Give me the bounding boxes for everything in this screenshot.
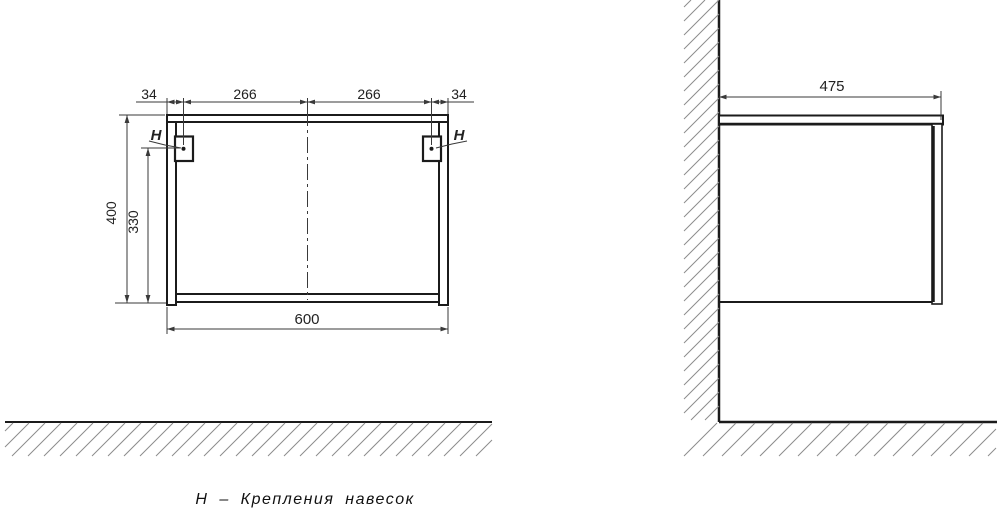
hatch-line xyxy=(684,42,719,77)
hatch-line xyxy=(684,210,719,245)
hatch-line xyxy=(988,448,996,456)
hatch-line xyxy=(428,423,461,456)
hatch-line xyxy=(396,423,429,456)
hatch-line xyxy=(284,423,317,456)
hatch-line xyxy=(28,423,61,456)
hatch-line xyxy=(684,350,719,385)
hatch-line xyxy=(684,308,719,343)
technical-drawing-page: Н Н 34 266 266 34 400 xyxy=(0,0,1000,509)
dim-600: 600 xyxy=(294,311,319,328)
hatch-line xyxy=(874,423,907,456)
hatch-line xyxy=(124,423,157,456)
hatch-line xyxy=(684,70,719,105)
hatch-line xyxy=(684,168,719,203)
hatch-line xyxy=(44,423,77,456)
hatch-line xyxy=(684,182,719,217)
hatch-line xyxy=(684,280,719,315)
hatch-line xyxy=(380,423,413,456)
hatch-line xyxy=(412,423,445,456)
dim-475: 475 xyxy=(819,78,844,95)
hatch-line xyxy=(798,423,831,456)
hatch-line xyxy=(252,423,285,456)
dim-266-right: 266 xyxy=(357,86,381,102)
hatch-line xyxy=(108,423,141,456)
hatch-line xyxy=(684,112,719,147)
hatch-line xyxy=(332,423,365,456)
dim-34-left: 34 xyxy=(141,86,157,102)
drawing-canvas: Н Н 34 266 266 34 400 xyxy=(0,0,1000,509)
hatch-line xyxy=(684,84,719,119)
hatch-line xyxy=(691,392,719,420)
hatch-line xyxy=(460,424,492,456)
hatch-line xyxy=(931,423,964,456)
wall-hatch xyxy=(684,0,719,420)
hatch-line xyxy=(684,364,719,399)
hatch-line xyxy=(684,294,719,329)
dim-400: 400 xyxy=(103,201,119,225)
hatch-line xyxy=(76,423,109,456)
hatch-line xyxy=(684,56,719,91)
dim-266-left: 266 xyxy=(233,86,257,102)
ground-hatch-right xyxy=(684,423,996,456)
hatch-line xyxy=(684,14,719,49)
hatch-line xyxy=(684,322,719,357)
dim-34-right: 34 xyxy=(451,86,467,102)
hatch-line xyxy=(684,238,719,273)
hatch-line xyxy=(684,423,717,456)
caption: Н – Крепления навесок xyxy=(195,491,414,508)
front-view: Н Н xyxy=(149,98,467,305)
bracket-hole xyxy=(182,147,186,151)
hatch-line xyxy=(684,378,719,413)
hatch-line xyxy=(300,423,333,456)
hatch-line xyxy=(722,423,755,456)
hatch-line xyxy=(684,266,719,301)
hatch-line xyxy=(204,423,237,456)
hatch-line xyxy=(348,423,381,456)
hatch-line xyxy=(364,423,397,456)
hatch-line xyxy=(684,126,719,161)
hatch-line xyxy=(140,423,173,456)
hatch-line xyxy=(836,423,869,456)
hatch-line xyxy=(684,336,719,371)
hatch-line xyxy=(741,423,774,456)
mount-label-left: Н xyxy=(151,127,163,144)
hatch-line xyxy=(444,423,477,456)
side-view: 475 xyxy=(5,0,997,456)
hatch-line xyxy=(684,0,719,35)
hatch-line xyxy=(5,423,13,431)
hatch-line xyxy=(236,423,269,456)
hatch-line xyxy=(855,423,888,456)
mount-label-right: Н xyxy=(454,127,466,144)
hatch-line xyxy=(779,423,812,456)
hatch-line xyxy=(684,28,719,63)
hatch-line xyxy=(912,423,945,456)
hatch-line xyxy=(703,423,736,456)
hatch-line xyxy=(684,252,719,287)
hatch-line xyxy=(188,423,221,456)
hatch-line xyxy=(476,440,492,456)
hatch-line xyxy=(12,423,45,456)
hatch-line xyxy=(172,423,205,456)
hatch-line xyxy=(156,423,189,456)
hatch-line xyxy=(684,154,719,189)
hatch-line xyxy=(268,423,301,456)
hatch-line xyxy=(760,423,793,456)
hatch-line xyxy=(684,0,691,7)
hatch-line xyxy=(92,423,125,456)
ground-hatch-left xyxy=(5,423,492,456)
hatch-line xyxy=(684,98,719,133)
front-bottom-panel xyxy=(176,294,439,302)
hatch-line xyxy=(5,423,29,447)
hatch-line xyxy=(220,423,253,456)
hatch-line xyxy=(684,196,719,231)
hatch-line xyxy=(684,140,719,175)
dim-330: 330 xyxy=(125,210,141,234)
hatch-line xyxy=(316,423,349,456)
hatch-line xyxy=(60,423,93,456)
hatch-line xyxy=(950,423,983,456)
hatch-line xyxy=(817,423,850,456)
hatch-line xyxy=(705,406,719,420)
bracket-hole xyxy=(430,147,434,151)
hatch-line xyxy=(684,224,719,259)
hatch-line xyxy=(893,423,926,456)
